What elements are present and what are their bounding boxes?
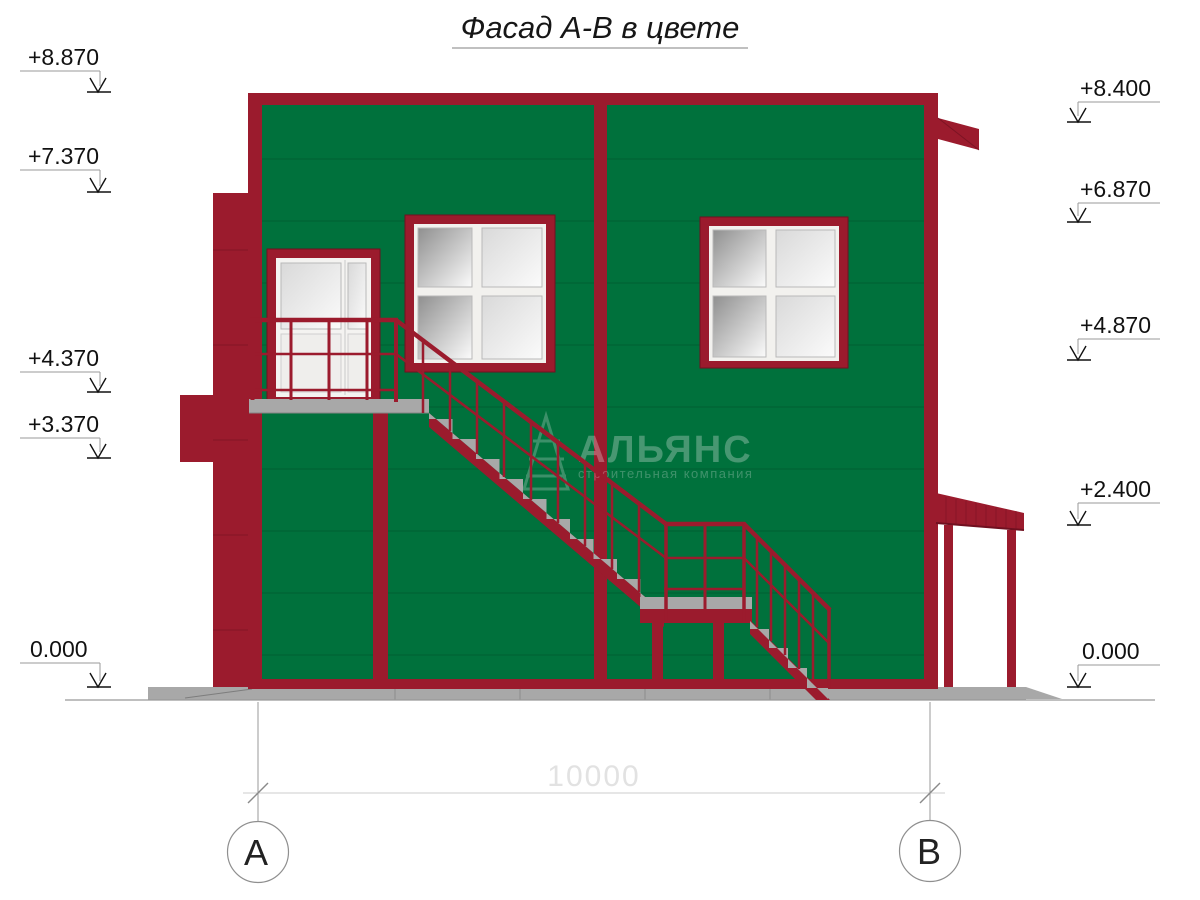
page-title: Фасад А-В в цвете [461, 10, 740, 45]
window-pane [713, 296, 766, 357]
elevation-drawing-canvas: Фасад А-В в цвете [0, 0, 1200, 900]
elevation-label: 0.000 [30, 636, 88, 662]
right-corner-column [924, 93, 938, 687]
mid-landing-post-right [713, 623, 724, 688]
axis-bubble-a: А [228, 822, 289, 883]
window-upper-left [405, 215, 555, 372]
elevation-marker-left-0: +8.870 [20, 44, 111, 92]
elevation-label: +2.400 [1080, 476, 1151, 502]
landing-support-post [373, 413, 388, 688]
entrance-door [267, 249, 380, 401]
axis-b-label: В [917, 831, 941, 872]
elevation-label: +4.870 [1080, 312, 1151, 338]
parapet-band [248, 93, 938, 105]
window-pane [713, 230, 766, 287]
elevation-label: +6.870 [1080, 176, 1151, 202]
left-pier-ledge [180, 395, 213, 462]
canopy-post-left [944, 525, 953, 687]
axis-a-label: А [244, 832, 268, 873]
span-dimension-value: 10000 [547, 760, 640, 793]
window-pane [482, 228, 542, 287]
pavement-right-slope [1026, 687, 1062, 699]
elevation-label: +8.870 [28, 44, 99, 70]
window-upper-right [700, 217, 848, 368]
mid-landing-fascia [640, 609, 752, 623]
door-lower-sidepanel [348, 334, 366, 392]
canopy-post-right [1007, 530, 1016, 687]
roof-spout [938, 118, 979, 150]
elevation-marker-right-1: +6.870 [1067, 176, 1160, 222]
elevation-marker-right-0: +8.400 [1067, 75, 1160, 122]
elevation-marker-left-2: +4.370 [20, 345, 111, 392]
drawing-title: Фасад А-В в цвете [452, 10, 748, 48]
window-pane [776, 296, 835, 357]
elevation-marker-left-1: +7.370 [20, 143, 111, 192]
mid-landing-slab [640, 597, 752, 609]
elevation-marker-left-4: 0.000 [20, 636, 111, 687]
window-pane [418, 296, 472, 359]
elevation-marker-right-3: +2.400 [1067, 476, 1160, 525]
right-canopy [936, 493, 1024, 687]
upper-landing-slab [249, 399, 429, 413]
elevation-marker-right-4: 0.000 [1067, 638, 1160, 687]
elevation-label: +4.370 [28, 345, 99, 371]
window-pane [482, 296, 542, 359]
mid-landing-post-left [652, 623, 663, 688]
axis-bubble-b: В [900, 821, 961, 882]
elevation-label: 0.000 [1082, 638, 1140, 664]
window-pane [776, 230, 835, 287]
window-pane [418, 228, 472, 287]
dimension-line: 10000 [243, 702, 945, 821]
facade-a-b-drawing: Фасад А-В в цвете [0, 0, 1200, 900]
elevation-marker-left-3: +3.370 [20, 411, 111, 458]
watermark-company: АЛЬЯНС [578, 429, 753, 471]
elevation-label: +8.400 [1080, 75, 1151, 101]
middle-joint-stripe [594, 105, 607, 683]
elevation-marker-right-2: +4.870 [1067, 312, 1160, 360]
elevation-label: +3.370 [28, 411, 99, 437]
elevation-label: +7.370 [28, 143, 99, 169]
base-strip [248, 679, 938, 689]
